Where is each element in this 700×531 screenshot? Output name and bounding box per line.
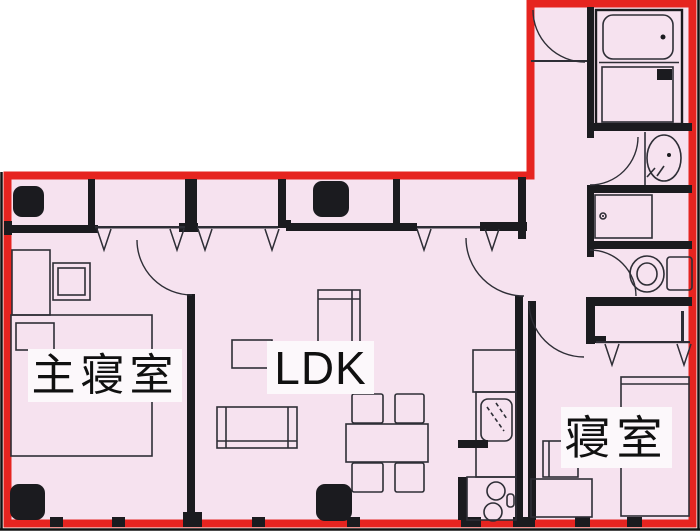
closet-side-wall xyxy=(88,179,95,227)
bedroom-left-wall xyxy=(528,301,536,520)
bedroom-closet-stub-right xyxy=(681,311,684,341)
ldk-recess-wall xyxy=(278,179,286,223)
room-label-bedroom: 寝室 xyxy=(561,407,672,468)
air-conditioner-icon xyxy=(13,186,44,217)
room-label-master-bedroom: 主寝室 xyxy=(28,349,182,402)
bedroom-top-wall xyxy=(586,297,692,306)
air-conditioner-icon xyxy=(316,484,352,521)
master-ldk-divider-top xyxy=(185,179,197,225)
ldk-recess-wall xyxy=(393,179,400,223)
hanging-wall-line xyxy=(197,226,278,229)
air-conditioner-icon xyxy=(10,484,45,520)
bathtub-drain-icon xyxy=(661,35,666,40)
washroom-bottom-wall xyxy=(587,185,692,193)
hanging-wall-line xyxy=(417,226,480,229)
bedroom-closet-stub xyxy=(586,306,595,344)
storage-left-wall xyxy=(587,193,594,242)
air-conditioner-icon xyxy=(313,181,349,217)
kitchen-return-wall xyxy=(458,440,488,448)
floor-plan: 主寝室 LDK 寝室 xyxy=(0,0,700,531)
faucet-icon xyxy=(667,153,671,157)
bedroom-closet-front-line xyxy=(596,341,690,343)
washroom-door-stub xyxy=(587,131,594,138)
hall-ldk-divider xyxy=(518,177,526,239)
hanging-wall-line xyxy=(95,226,185,229)
master-ldk-divider-bottom xyxy=(187,294,195,520)
closet-front-wall xyxy=(11,225,98,233)
ldk-top-sill xyxy=(286,223,417,231)
washing-machine-panel-icon xyxy=(657,69,672,80)
bath-left-wall xyxy=(587,7,594,126)
left-wall-post xyxy=(4,221,12,235)
kitchen-side-panel xyxy=(458,477,467,520)
storage-bottom-wall xyxy=(587,241,692,249)
room-label-ldk: LDK xyxy=(267,341,374,394)
